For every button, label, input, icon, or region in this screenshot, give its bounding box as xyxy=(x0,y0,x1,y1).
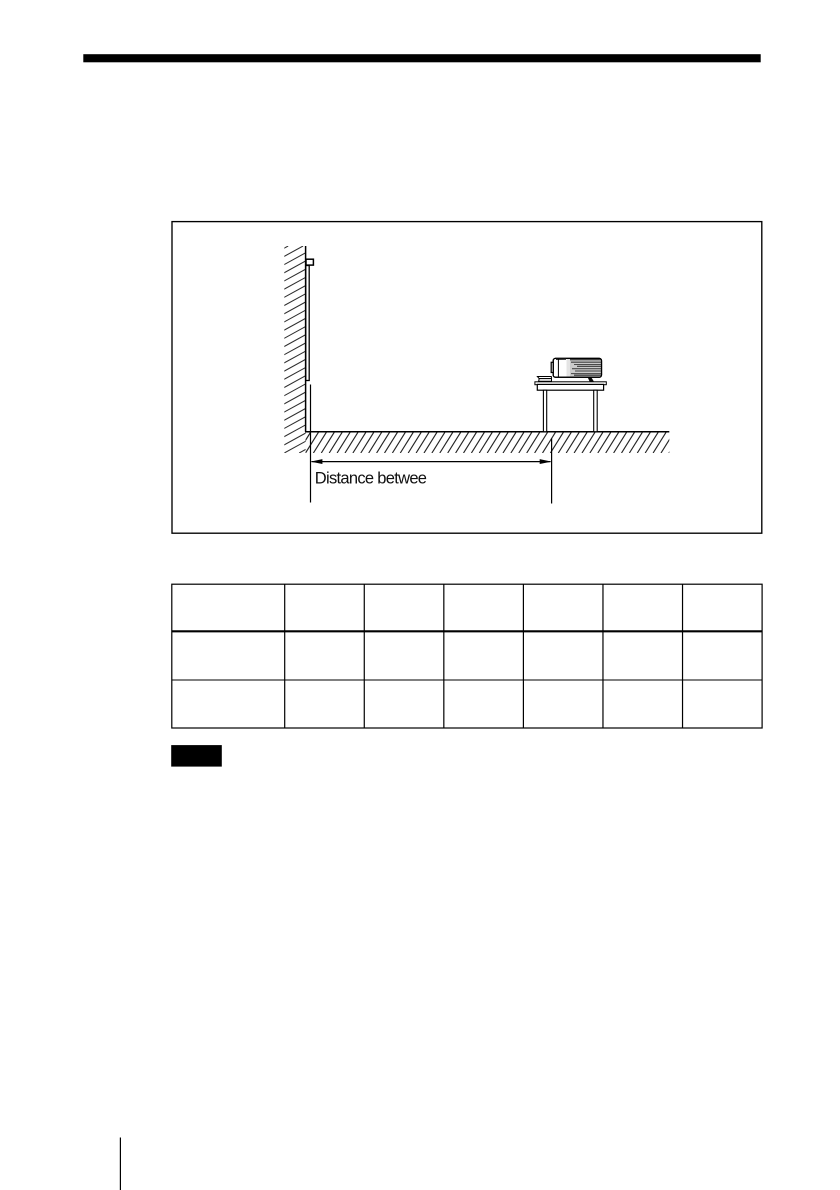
svg-text:Distance betwee: Distance betwee xyxy=(315,469,427,487)
